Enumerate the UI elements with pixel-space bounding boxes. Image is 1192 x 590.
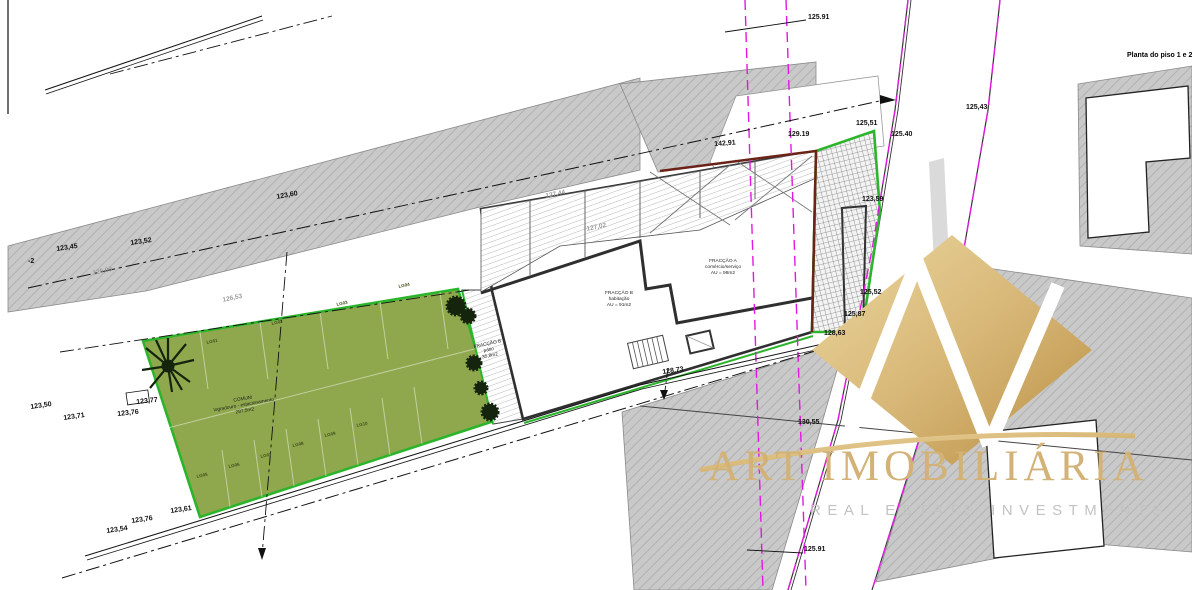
watermark-brand-text: ART IMOBILIÁRIA <box>708 442 1149 491</box>
site-plan-page: { "title": "Planta do piso 1 e 2", "wate… <box>0 0 1192 590</box>
watermark-tagline-text: REAL ESTATE INVESTMENTS <box>810 502 1169 519</box>
elevator-shaft <box>686 331 713 354</box>
plan-title: Planta do piso 1 e 2 <box>1127 52 1192 59</box>
annex-outline <box>126 390 149 405</box>
